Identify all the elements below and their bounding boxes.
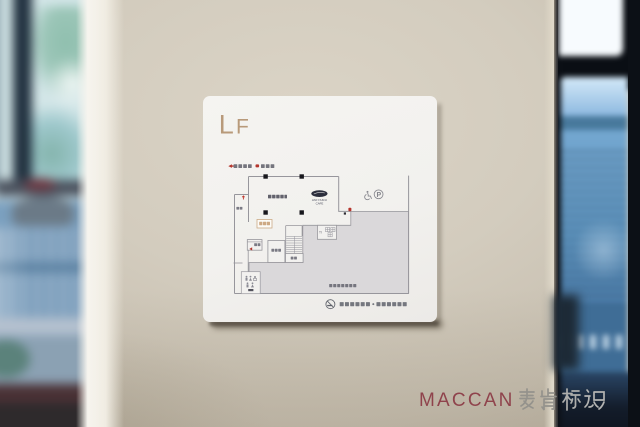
svg-text:TI: TI — [319, 231, 322, 235]
svg-text:L: L — [219, 109, 234, 139]
svg-text:P: P — [377, 192, 382, 199]
svg-text:CAFE: CAFE — [316, 201, 324, 205]
svg-text:F: F — [236, 115, 249, 138]
